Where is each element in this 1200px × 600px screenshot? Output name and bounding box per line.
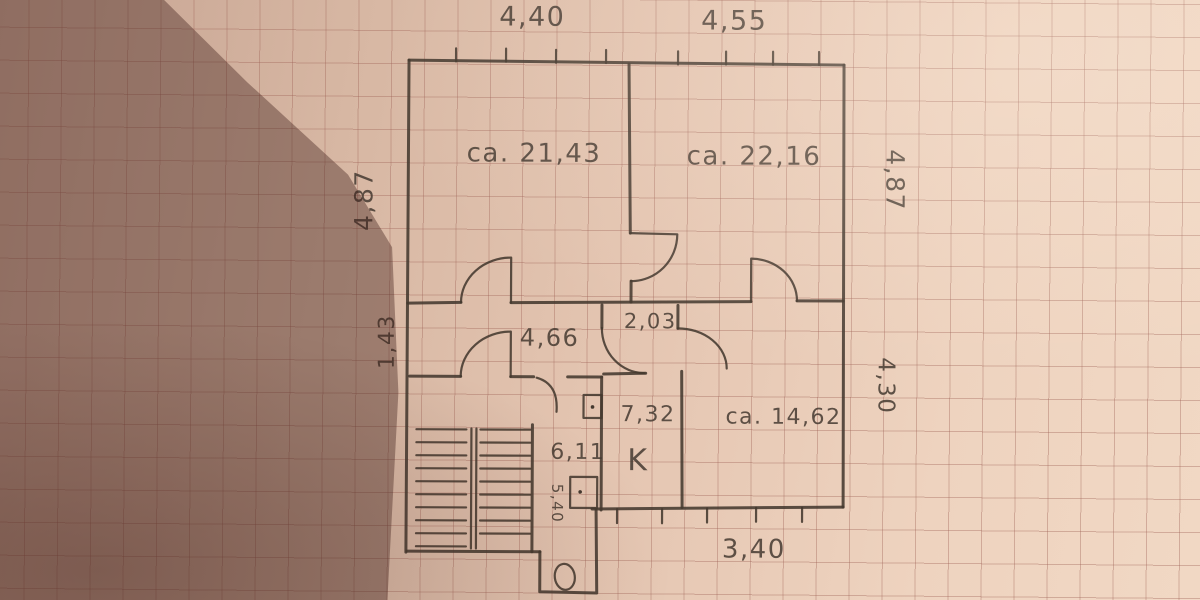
wall-left — [406, 60, 409, 552]
chimney-box-lower — [570, 477, 597, 508]
kitchen-area-label: 7,32 — [620, 402, 675, 427]
photo-of-floorplan-sketch: 4,40 4,55 ca. 21,43 ca. 22,16 4,87 4,87 … — [0, 0, 1200, 600]
wall-kitchen-right — [681, 371, 683, 507]
stair-treads-right — [480, 429, 530, 533]
door-arc-divider — [630, 233, 677, 281]
wall-corridor — [408, 299, 843, 305]
dim-stair-side-label: 5,40 — [548, 484, 566, 523]
door-arc-hallway — [461, 331, 511, 376]
dim-top-left-label: 4,40 — [499, 2, 565, 33]
wall-hallway-lower — [410, 376, 602, 377]
door-arc-vestibule-left — [602, 328, 645, 373]
stair-divider — [471, 428, 477, 548]
door-arc-hall-room — [537, 378, 557, 412]
wall-divider-upper — [628, 64, 631, 233]
door-arc-room-left — [461, 257, 511, 302]
kitchen-letter-label: K — [627, 443, 648, 478]
dim-bottom-width-label: 3,40 — [722, 535, 786, 565]
room-top-right-area-label: ca. 22,16 — [687, 141, 822, 172]
wall-kitchen-top — [604, 373, 646, 374]
wall-stair-bottom — [407, 551, 540, 552]
dim-right-lower-label: 4,30 — [873, 357, 899, 414]
dim-right-upper-label: 4,87 — [880, 149, 909, 211]
wall-bottom — [592, 506, 843, 510]
door-arc-room-right — [751, 259, 797, 302]
wall-stair-right — [532, 425, 533, 552]
chimney-dot-lower — [578, 490, 582, 494]
dim-vestibule-label: 2,03 — [624, 309, 677, 333]
door-arc-vestibule-right — [678, 328, 727, 368]
wall-right — [842, 65, 845, 507]
dim-hall-width-label: 4,66 — [520, 324, 580, 352]
wall-top — [409, 60, 844, 65]
chimney-dot-upper — [591, 405, 595, 409]
toilet-oval — [553, 563, 576, 591]
room-right-area-label: ca. 14,62 — [725, 405, 841, 431]
dim-top-right-label: 4,55 — [701, 5, 767, 36]
stair-treads-left — [416, 429, 467, 546]
hall-area-label: 6,11 — [550, 440, 605, 465]
room-top-left-area-label: ca. 21,43 — [467, 138, 602, 169]
